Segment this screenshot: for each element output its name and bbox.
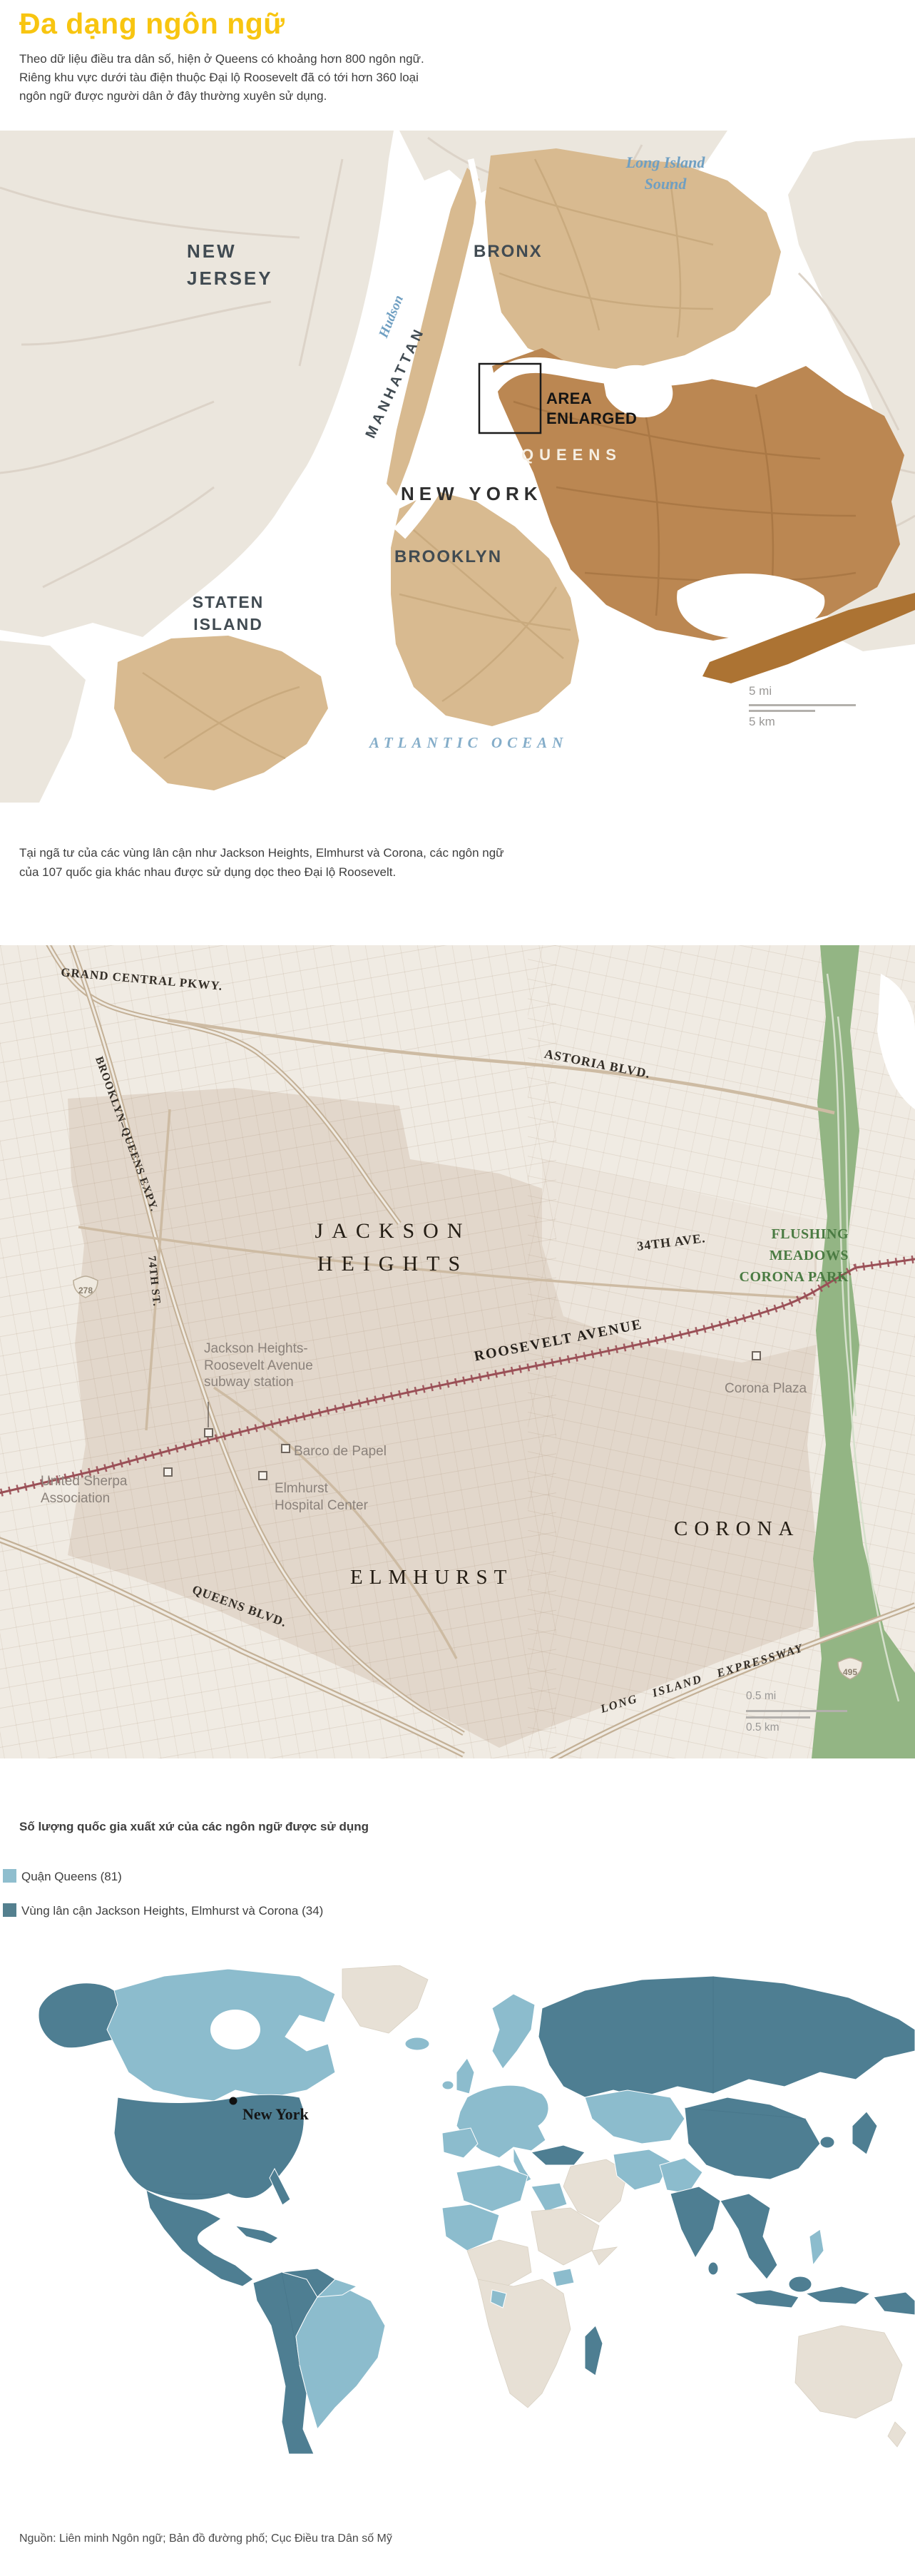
new-york-marker-dot: [230, 2097, 237, 2105]
legend-label-queens: Quận Queens (81): [21, 1870, 122, 1884]
label-corona: CORONA: [674, 1517, 799, 1541]
middle-line: của 107 quốc gia khác nhau được sử dụng …: [19, 862, 504, 882]
scale-miles-label: 5 mi: [749, 684, 772, 698]
scale-miles-label: 0.5 mi: [746, 1690, 776, 1703]
elmhurst-hospital-marker: [259, 1472, 267, 1480]
label-united-sherpa: United Sherpa Association: [41, 1473, 127, 1507]
nyc-locator-map: NEW JERSEY BRONX Long Island Sound Hudso…: [0, 131, 915, 803]
label-staten-island: STATEN ISLAND: [171, 591, 285, 636]
label-queens: QUEENS: [521, 446, 622, 464]
label-flushing-meadows-corona-park: FLUSHING MEADOWS CORONA PARK: [740, 1223, 849, 1288]
infographic-canvas: Đa dạng ngôn ngữ Theo dữ liệu điều tra d…: [0, 0, 915, 2576]
label-new-jersey: NEW JERSEY: [187, 238, 273, 292]
scale-bar-km: [746, 1716, 810, 1719]
label-subway-station: Jackson Heights- Roosevelt Avenue subway…: [204, 1340, 313, 1391]
source-note: Nguồn: Liên minh Ngôn ngữ; Bản đồ đường …: [19, 2532, 392, 2545]
label-atlantic-ocean: ATLANTIC OCEAN: [369, 734, 568, 752]
label-bronx: BRONX: [474, 242, 543, 262]
page-title: Đa dạng ngôn ngữ: [19, 7, 285, 41]
street-map-graphic: 278 495: [0, 945, 915, 1758]
intro-line: Theo dữ liệu điều tra dân số, hiện ở Que…: [19, 50, 424, 68]
world-choropleth-map: New York: [0, 1965, 915, 2454]
scale-bar-km: [749, 710, 815, 712]
world-map-graphic: [0, 1965, 915, 2454]
legend-label-neighborhood: Vùng lân cận Jackson Heights, Elmhurst v…: [21, 1904, 323, 1918]
scale-km-label: 0.5 km: [746, 1721, 779, 1734]
subway-station-marker: [205, 1429, 213, 1437]
label-elmhurst-hospital: Elmhurst Hospital Center: [275, 1480, 368, 1514]
label-barco-de-papel: Barco de Papel: [294, 1443, 387, 1460]
middle-paragraph: Tại ngã tư của các vùng lân cận như Jack…: [19, 843, 504, 882]
label-area-enlarged: AREA ENLARGED: [546, 389, 637, 429]
label-brooklyn: BROOKLYN: [394, 547, 502, 567]
corona-plaza-marker: [752, 1352, 760, 1360]
intro-paragraph: Theo dữ liệu điều tra dân số, hiện ở Que…: [19, 50, 424, 106]
legend-title: Số lượng quốc gia xuất xứ của các ngôn n…: [19, 1820, 369, 1834]
shield-495-number: 495: [843, 1667, 857, 1677]
middle-line: Tại ngã tư của các vùng lân cận như Jack…: [19, 843, 504, 862]
scale-bar-miles: [749, 704, 856, 706]
legend-swatch-queens: [3, 1869, 16, 1883]
label-long-island-sound: Long Island Sound: [580, 152, 751, 195]
label-elmhurst: ELMHURST: [350, 1566, 513, 1589]
label-corona-plaza: Corona Plaza: [725, 1380, 807, 1398]
intro-line: Riêng khu vực dưới tàu điện thuộc Đại lộ…: [19, 68, 424, 87]
label-new-york-marker: New York: [242, 2105, 309, 2124]
label-new-york: NEW YORK: [401, 483, 543, 505]
nyc-locator-map-graphic: [0, 131, 915, 803]
barco-de-papel-marker: [282, 1445, 290, 1452]
label-jackson-heights: JACKSON HEIGHTS: [275, 1215, 511, 1281]
legend-swatch-neighborhood: [3, 1903, 16, 1917]
intro-line: ngôn ngữ được người dân ở đây thường xuy…: [19, 87, 424, 106]
shield-278-number: 278: [78, 1286, 93, 1295]
queens-street-map: 278 495 GRAND CENTRAL PKWY. BROOKLYN–QUE…: [0, 945, 915, 1758]
scale-km-label: 5 km: [749, 715, 775, 729]
scale-bar-miles: [746, 1710, 847, 1712]
united-sherpa-marker: [164, 1468, 172, 1476]
